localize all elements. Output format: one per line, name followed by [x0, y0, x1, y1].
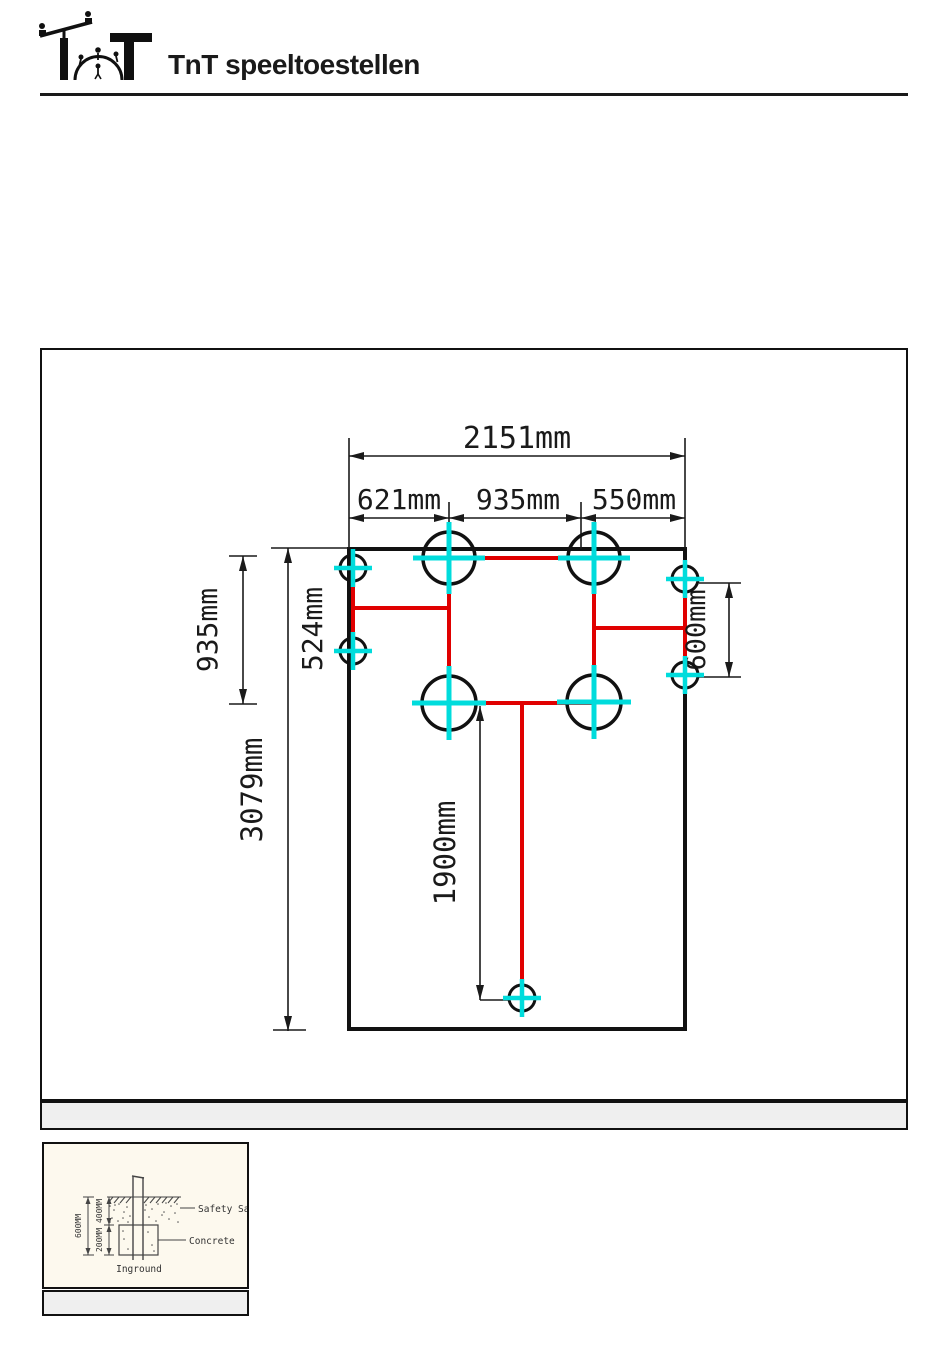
plan-drawing-frame: 2151mm 621mm 935mm 550mm 935mm 3079mm 52… — [40, 348, 908, 1101]
dim-label-total-height: 3079mm — [235, 738, 269, 843]
label-concrete: Concrete — [189, 1236, 235, 1247]
dim-label-total-width: 2151mm — [463, 421, 571, 456]
dim-label-depth-concrete: 200MM — [95, 1228, 104, 1252]
plan-outline — [349, 549, 685, 1029]
post-marker — [334, 632, 372, 670]
plan-footer-band — [40, 1101, 908, 1130]
post-markers — [334, 522, 704, 1017]
dim-label-left-inner: 524mm — [296, 587, 329, 671]
post-marker — [412, 666, 486, 740]
logo-left-t-with-seesaw-icon — [39, 11, 92, 80]
concrete-block — [119, 1225, 158, 1255]
post-marker — [558, 522, 630, 594]
logo-dome-climber-icon — [75, 47, 122, 80]
plan-drawing: 2151mm 621mm 935mm 550mm 935mm 3079mm 52… — [42, 350, 906, 1099]
detail-footer-band — [42, 1290, 249, 1316]
header-rule — [40, 93, 908, 96]
inground-post — [132, 1176, 144, 1260]
ground-line — [107, 1197, 181, 1203]
dimension-lines — [229, 438, 741, 1031]
dim-label-depth-total: 600MM — [74, 1214, 83, 1238]
sand-stipple — [109, 1202, 179, 1223]
post-marker — [503, 979, 541, 1017]
dim-label-seg-left: 621mm — [357, 483, 441, 516]
concrete-stipple — [122, 1230, 155, 1252]
dim-label-depth-sand: 400MM — [95, 1199, 104, 1223]
post-marker — [557, 665, 631, 739]
foundation-detail-frame: Safety Sand Concrete Inground 600MM 400M… — [42, 1142, 249, 1289]
tnt-logo — [36, 10, 156, 86]
dim-label-seg-mid: 935mm — [476, 483, 560, 516]
label-safety-sand: Safety Sand — [198, 1204, 247, 1215]
post-marker — [413, 522, 485, 594]
label-inground: Inground — [116, 1264, 162, 1275]
dim-label-bottom-post: 1900mm — [428, 801, 462, 906]
page-title: TnT speeltoestellen — [168, 49, 420, 81]
dim-label-left-upper: 935mm — [191, 588, 224, 672]
foundation-detail: Safety Sand Concrete Inground 600MM 400M… — [44, 1144, 247, 1287]
beam-lines — [353, 558, 685, 998]
post-marker — [334, 549, 372, 587]
dimension-arrows — [239, 452, 733, 1031]
dim-label-seg-right: 550mm — [592, 483, 676, 516]
